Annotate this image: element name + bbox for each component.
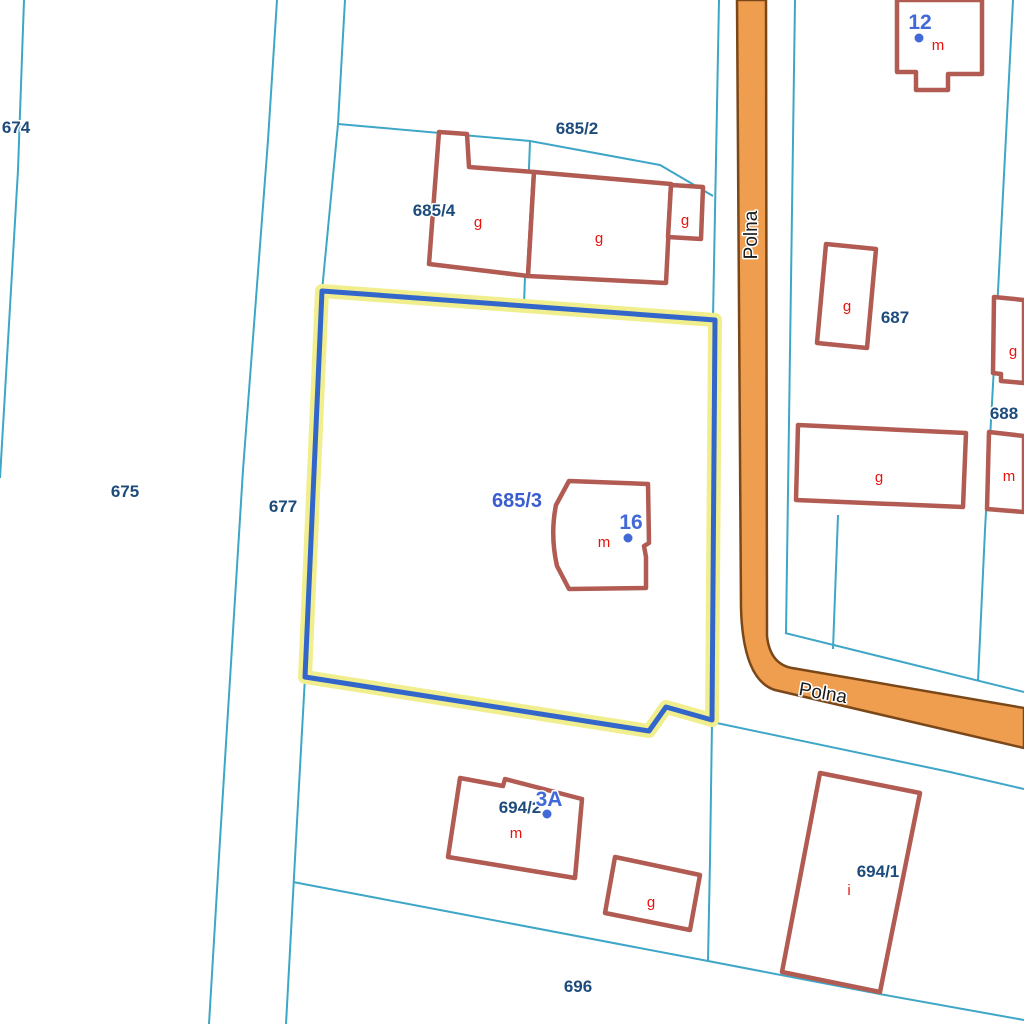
cadastral-map-view: gggmmgggmmgi674675677685/2685/4687688694… [0,0,1024,1024]
parcel-label-674: 674 [2,118,31,137]
building-letter-g: g [474,214,482,231]
parcel-label-677: 677 [269,497,297,516]
building-g-right-top [993,297,1024,383]
address-dot-16 [623,533,634,544]
address-label-16: 16 [619,511,642,534]
building-letter-g: g [595,230,603,247]
road-label-polna-vertical: Polna [741,210,762,259]
building-letter-g: g [843,298,851,315]
parcel-label-687: 687 [881,308,909,327]
selected-parcel-label-685-3: 685/3 [492,490,542,512]
building-letter-m: m [1003,468,1016,485]
building-letter-m: m [510,825,523,842]
parcel-label-675: 675 [111,482,139,501]
address-dot-12 [914,33,925,44]
building-685-4-right [528,172,671,283]
address-label-12: 12 [908,11,931,34]
building-letter-g: g [875,469,883,486]
building-letter-g: g [1009,343,1017,360]
parcel-label-685-2: 685/2 [556,119,599,138]
building-letter-m: m [598,534,611,551]
building-687-g [817,244,876,348]
building-letter-g: g [681,212,689,229]
address-label-3A: 3A [536,788,563,811]
parcel-label-688: 688 [990,404,1018,423]
parcel-label-685-4: 685/4 [413,201,456,220]
building-letter-g: g [647,894,655,911]
parcel-label-696: 696 [564,977,592,996]
parcel-label-694-1: 694/1 [857,862,900,881]
map-canvas[interactable]: gggmmgggmmgi674675677685/2685/4687688694… [0,0,1024,1024]
building-g-wide [796,425,966,507]
building-letter-i: i [847,882,850,899]
building-letter-m: m [932,37,945,54]
